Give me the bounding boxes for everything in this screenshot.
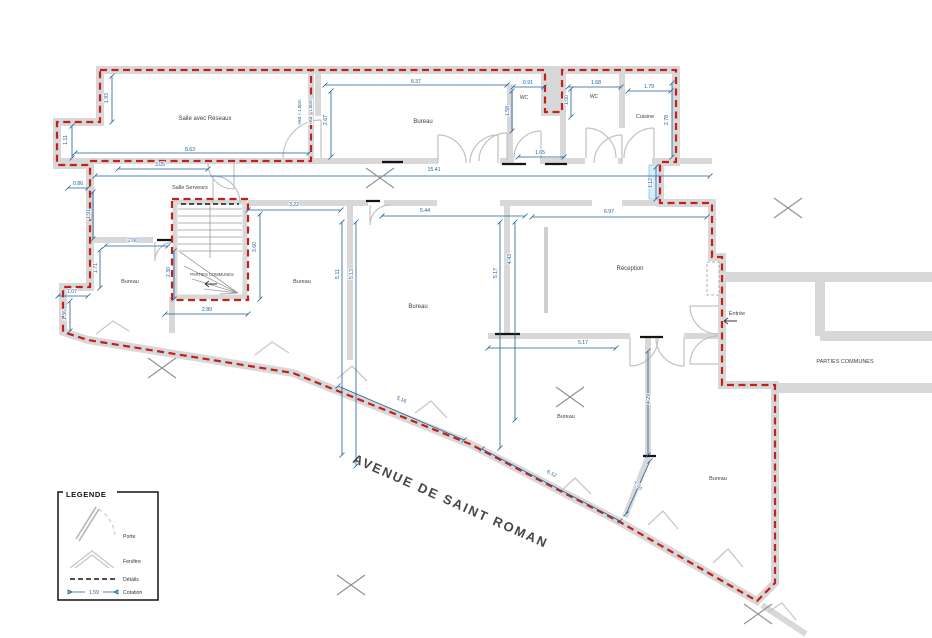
dimension-label: 5.11 xyxy=(335,269,341,279)
exterior-wall xyxy=(57,70,775,601)
dimension-label: 1.65 xyxy=(535,150,545,156)
dimension-label: 3.22 xyxy=(289,202,299,208)
dimension-label: 2.89 xyxy=(202,307,212,313)
dimension-label: 2.60 xyxy=(128,238,138,244)
window-symbols xyxy=(96,321,796,620)
legend-title: LEGENDE xyxy=(66,490,106,499)
legend-item-porte: Porte xyxy=(123,534,136,540)
floor-plan: AVENUE DE SAINT ROMAN LEGENDE Porte Fenê… xyxy=(0,0,932,638)
staircase xyxy=(178,204,242,294)
dimension-label: 1.36 xyxy=(62,310,68,320)
legend-cotation-value: 1.59 xyxy=(89,590,99,596)
dimension-label: 1.91 xyxy=(86,209,92,219)
dimension-lines xyxy=(56,74,713,524)
room-label: Cuisine xyxy=(636,114,654,120)
dimension-label: 3.60 xyxy=(252,242,258,252)
dimension-label: 0.86 xyxy=(73,181,83,187)
room-label: Bureau xyxy=(408,304,427,310)
common-area-walls xyxy=(718,277,932,388)
dimension-label: 4.43 xyxy=(507,254,513,264)
dimension-label: 1.93 xyxy=(104,93,110,103)
room-label: Réception xyxy=(616,266,643,272)
dimension-label: 1.79 xyxy=(644,84,654,90)
legend: LEGENDE Porte Fenêtre Détails 1.59 Cotat… xyxy=(58,487,158,600)
dimension-label: 6.97 xyxy=(604,209,614,215)
dimension-label: 5.17 xyxy=(493,268,499,278)
dimension-label: 3.05 xyxy=(155,162,165,168)
room-label: Bureau xyxy=(293,279,311,285)
dimension-label: 5.17 xyxy=(578,340,588,346)
legend-item-fenetre: Fenêtre xyxy=(123,559,141,565)
dimension-label: 1.68 xyxy=(591,80,601,86)
dimension-label: 5.16 xyxy=(396,395,408,405)
legend-item-details: Détails xyxy=(123,577,139,583)
dimension-label: 0.91 xyxy=(523,80,533,86)
door-symbols xyxy=(155,120,718,366)
dimension-label: 5.44 xyxy=(420,208,430,214)
dimension-label: 1.11 xyxy=(63,135,69,145)
dimension-label: 1.12 xyxy=(648,178,654,188)
dimension-label: 6.12 xyxy=(546,469,558,479)
stair-treads xyxy=(178,204,242,294)
dimension-label: 4.29 xyxy=(646,394,652,404)
legend-box xyxy=(58,492,158,600)
dimension-label: 2.30 xyxy=(166,267,172,277)
room-label: PARTIES COMMUNES xyxy=(816,359,874,365)
floor-plan-canvas: AVENUE DE SAINT ROMAN LEGENDE Porte Fenê… xyxy=(0,0,932,638)
room-label: Bureau xyxy=(121,279,139,285)
dimension-label: Hsd > 1.80m xyxy=(308,99,313,124)
premises-boundary xyxy=(57,70,775,601)
room-label: Salle Serveurs xyxy=(172,185,208,191)
dimension-label: 8.63 xyxy=(185,147,195,153)
dimension-label: 1.71 xyxy=(93,263,99,273)
dimension-label: Hsd < 1.80m xyxy=(297,99,302,124)
room-label: Salle avec Réseaux xyxy=(178,116,231,122)
dimension-label: 1.58 xyxy=(505,106,511,116)
dimension-label: 2.67 xyxy=(323,115,329,125)
room-label: WC xyxy=(520,95,529,101)
room-label: Bureau xyxy=(557,414,575,420)
room-label: PARTIES COMMUNES xyxy=(190,272,234,277)
boundary-layer xyxy=(57,70,775,601)
dimension-label: 6.37 xyxy=(411,79,421,85)
room-label: Bureau xyxy=(413,119,432,125)
dashed-shaft xyxy=(707,262,719,295)
duct-block xyxy=(543,66,564,112)
dimension-label: 5.13 xyxy=(349,269,355,279)
room-label: Entrée xyxy=(729,311,745,317)
room-label: WC xyxy=(590,94,599,100)
labels-layer: Salle avec RéseauxSalle ServeursBureauWC… xyxy=(62,79,874,491)
dimension-label: 2.78 xyxy=(664,115,670,125)
room-label: Bureau xyxy=(709,476,727,482)
dimension-label: 15.41 xyxy=(428,167,441,173)
dimension-label: 1.00 xyxy=(564,95,570,105)
dimension-label: 1.07 xyxy=(67,289,77,295)
legend-item-cotation: Cotation xyxy=(123,590,142,596)
